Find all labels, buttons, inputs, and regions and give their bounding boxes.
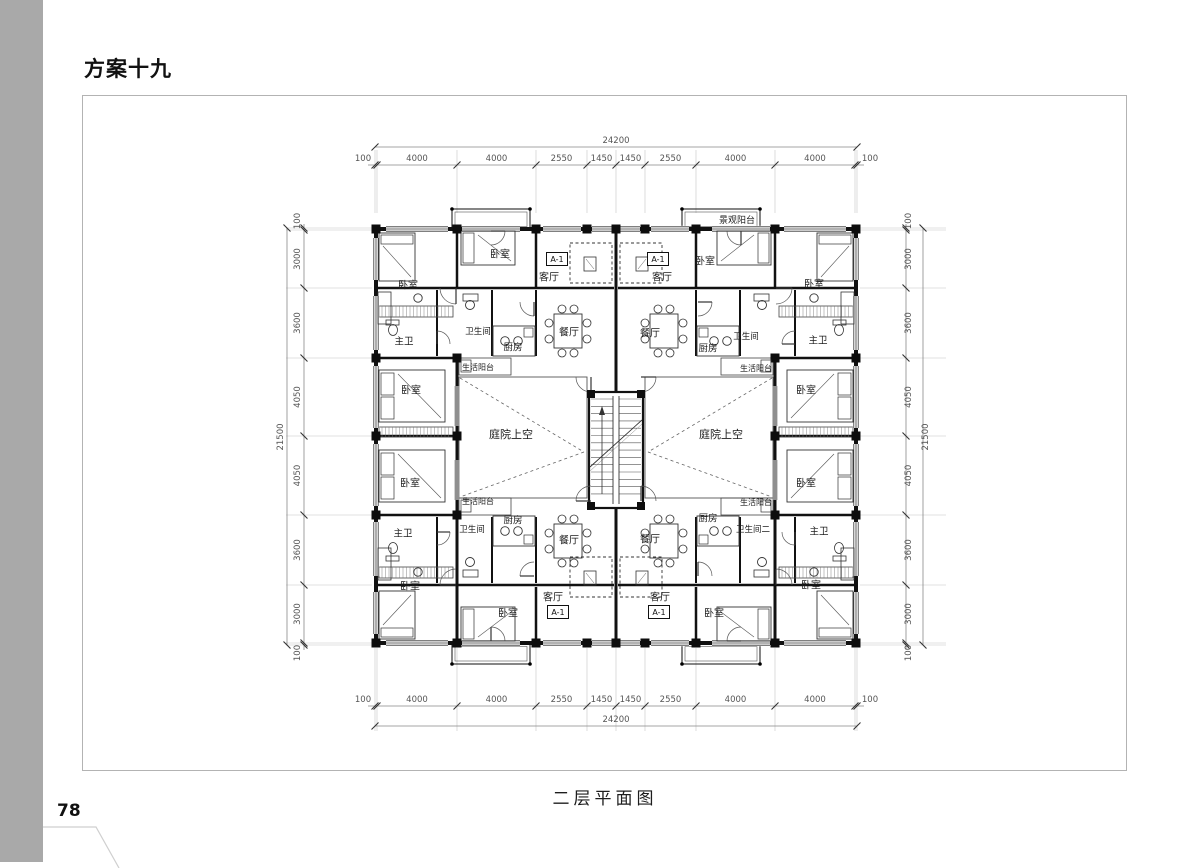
plan-text: 卧室 [398, 279, 418, 292]
plan-text: 厨房 [503, 341, 522, 353]
plan-text: 卧室 [801, 579, 821, 592]
plan-text: 卧室 [400, 477, 420, 490]
plan-text: 4000 [486, 154, 508, 164]
plan-text: 100 [862, 695, 878, 705]
page-title: 方案十九 [84, 53, 172, 83]
plan-text: 100 [293, 645, 303, 661]
plan-text: 4050 [904, 465, 914, 487]
page-number: 78 [57, 801, 81, 821]
plan-text: 1450 [591, 695, 613, 705]
plan-text: A-1 [551, 608, 564, 617]
plan-text: 卫生间 [465, 326, 491, 337]
plan-text: 3600 [904, 312, 914, 334]
plan-text: 卧室 [796, 384, 816, 397]
plan-text: 卫生间 [733, 331, 759, 342]
plan-text: 生活阳台 [462, 362, 494, 372]
plan-text: 100 [862, 154, 878, 164]
plan-text: 2550 [660, 695, 682, 705]
plan-text: 卧室 [401, 384, 421, 397]
drawing-caption: 二层平面图 [82, 784, 1128, 809]
plan-text: 卧室 [695, 255, 715, 268]
plan-text: 卫生间 [459, 524, 485, 535]
left-gray-bar [0, 0, 43, 862]
plan-text: 3000 [293, 248, 303, 270]
plan-text: 4000 [406, 695, 428, 705]
plan-text: 生活阳台 [740, 497, 772, 507]
plan-text: 2550 [551, 695, 573, 705]
plan-text: 4000 [725, 695, 747, 705]
plan-text: 100 [355, 154, 371, 164]
plan-text: 3600 [904, 539, 914, 561]
plan-text: 主卫 [394, 335, 414, 347]
plan-text: 21500 [276, 423, 286, 450]
plan-text: 100 [355, 695, 371, 705]
plan-text: A-1 [550, 255, 563, 264]
plan-text: 客厅 [539, 271, 559, 284]
plan-text: 3600 [293, 312, 303, 334]
plan-text: 3000 [904, 248, 914, 270]
plan-text: 卫生间二 [736, 524, 771, 535]
plan-text: 客厅 [652, 271, 672, 284]
plan-text: 2550 [551, 154, 573, 164]
plan-text: 厨房 [698, 342, 717, 354]
plan-text: 24200 [602, 136, 629, 146]
plan-text: A-1 [651, 255, 664, 264]
floor-plan-drawing: 1001004000400040004000255025501450145014… [82, 95, 1127, 771]
plan-text: A-1 [652, 608, 665, 617]
plan-text: 100 [293, 213, 303, 229]
plan-text: 生活阳台 [462, 496, 494, 506]
plan-text: 厨房 [503, 514, 522, 526]
plan-text: 24200 [602, 715, 629, 725]
plan-text: 4000 [486, 695, 508, 705]
plan-text: 4000 [406, 154, 428, 164]
plan-text: 庭院上空 [699, 427, 743, 441]
plan-text: 4050 [904, 386, 914, 408]
plan-text: 主卫 [393, 527, 413, 539]
plan-text: 3000 [904, 603, 914, 625]
plan-text: 庭院上空 [489, 427, 533, 441]
plan-text: 1450 [620, 695, 642, 705]
plan-text: 卧室 [796, 477, 816, 490]
plan-text: 1450 [591, 154, 613, 164]
plan-text: 主卫 [809, 525, 829, 537]
plan-text: 厨房 [698, 512, 717, 524]
plan-text: 3600 [293, 539, 303, 561]
plan-text: 景观阳台 [719, 214, 755, 226]
plan-text: 4050 [293, 386, 303, 408]
plan-text: 卧室 [498, 607, 518, 620]
plan-text: 生活阳台 [740, 363, 772, 373]
plan-text: 餐厅 [640, 327, 660, 340]
plan-text: 3000 [293, 603, 303, 625]
plan-text: 4000 [804, 695, 826, 705]
plan-text: 卧室 [704, 607, 724, 620]
plan-text: 4000 [804, 154, 826, 164]
plan-text: 4050 [293, 465, 303, 487]
plan-text: 1450 [620, 154, 642, 164]
plan-text: 21500 [921, 423, 931, 450]
plan-text: 100 [904, 645, 914, 661]
plan-text: 2550 [660, 154, 682, 164]
plan-text: 客厅 [543, 591, 563, 604]
plan-text: 餐厅 [559, 326, 579, 339]
plan-text: 卧室 [804, 278, 824, 291]
plan-text: 主卫 [808, 334, 828, 346]
plan-text: 卧室 [490, 248, 510, 261]
plan-text: 4000 [725, 154, 747, 164]
plan-text: 餐厅 [640, 533, 660, 546]
plan-text: 餐厅 [559, 534, 579, 547]
plan-text: 客厅 [650, 591, 670, 604]
plan-text: 100 [904, 213, 914, 229]
plan-text: 卧室 [400, 580, 420, 593]
